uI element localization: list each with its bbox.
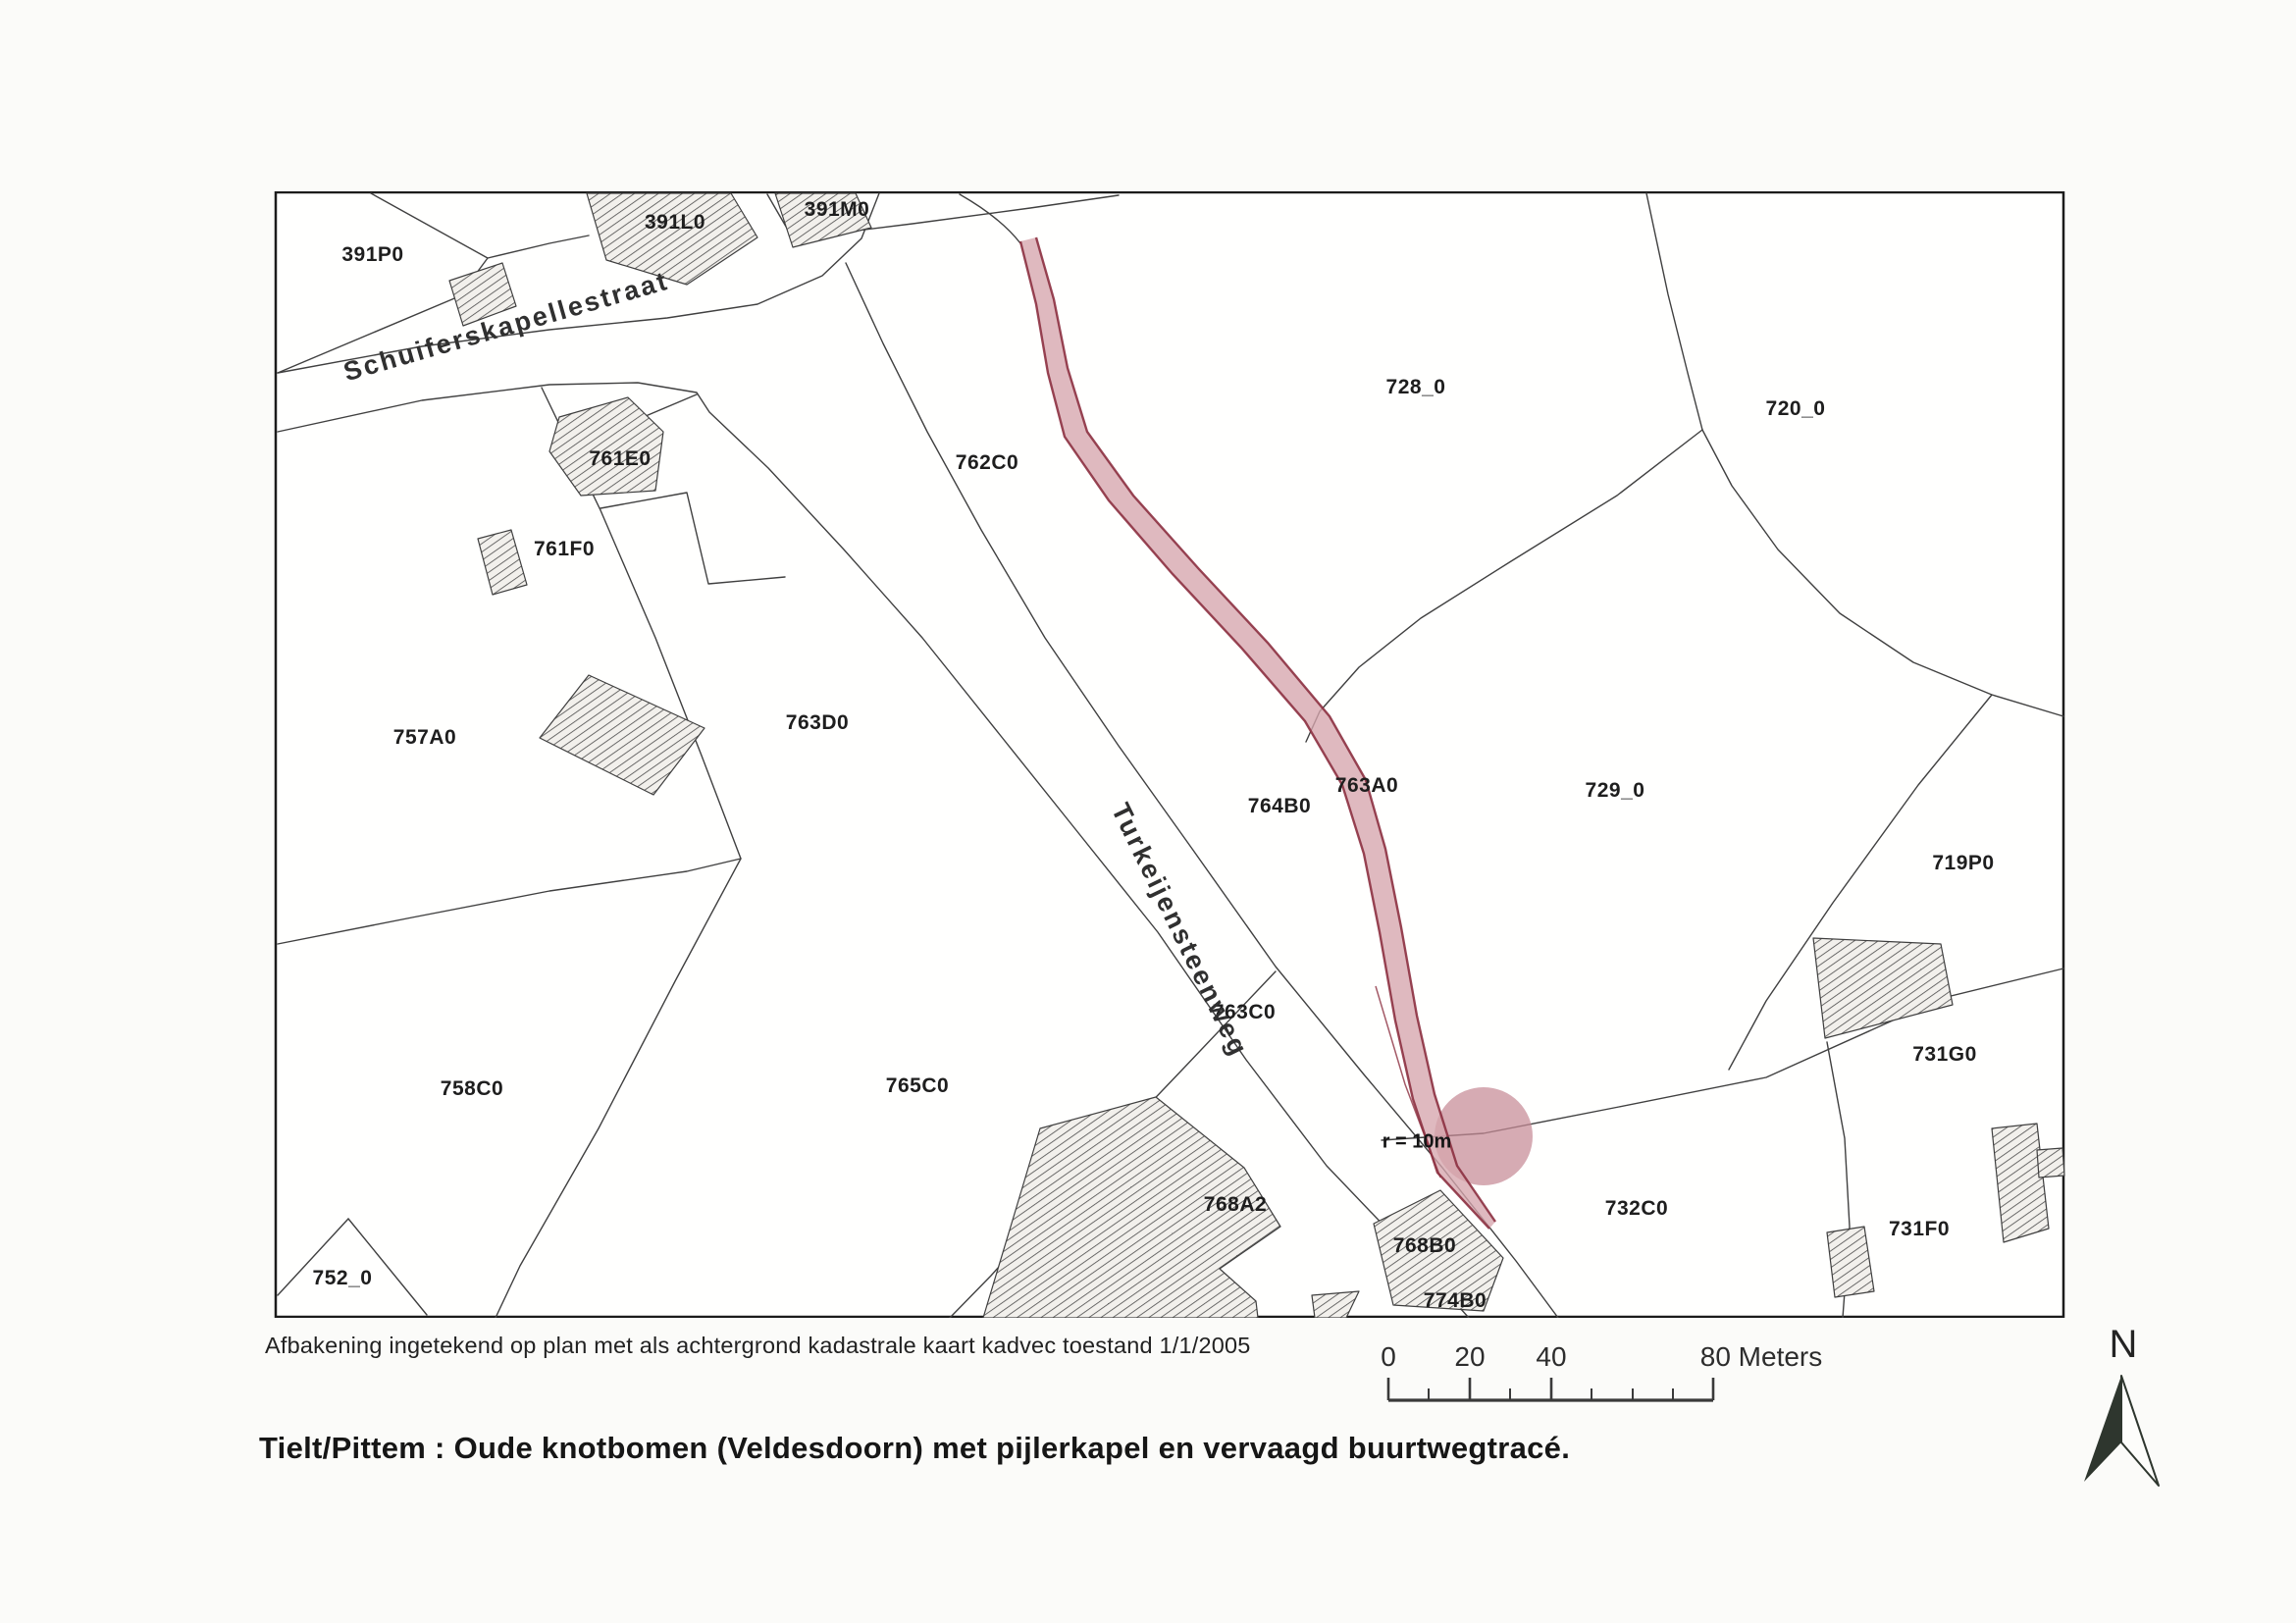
map-frame (273, 191, 2065, 1318)
highlight-path-band (1020, 237, 1495, 1229)
map-caption: Afbakening ingetekend op plan met als ac… (265, 1333, 1251, 1359)
scale-label-80-meters: 80 Meters (1700, 1341, 1823, 1373)
north-arrow-icon (2078, 1370, 2166, 1492)
north-label: N (2102, 1323, 2145, 1367)
scale-label-0: 0 (1381, 1341, 1396, 1373)
map-title: Tielt/Pittem : Oude knotbomen (Veldesdoo… (259, 1431, 1570, 1466)
scale-bar-ticks (1379, 1372, 1732, 1405)
cadastral-map-page: 391P0391L0391M0728_0720_0762C0761E0761F0… (0, 0, 2296, 1623)
scale-label-20: 20 (1454, 1341, 1485, 1373)
map-overlay-svg (273, 191, 2065, 1318)
scale-label-40: 40 (1536, 1341, 1566, 1373)
